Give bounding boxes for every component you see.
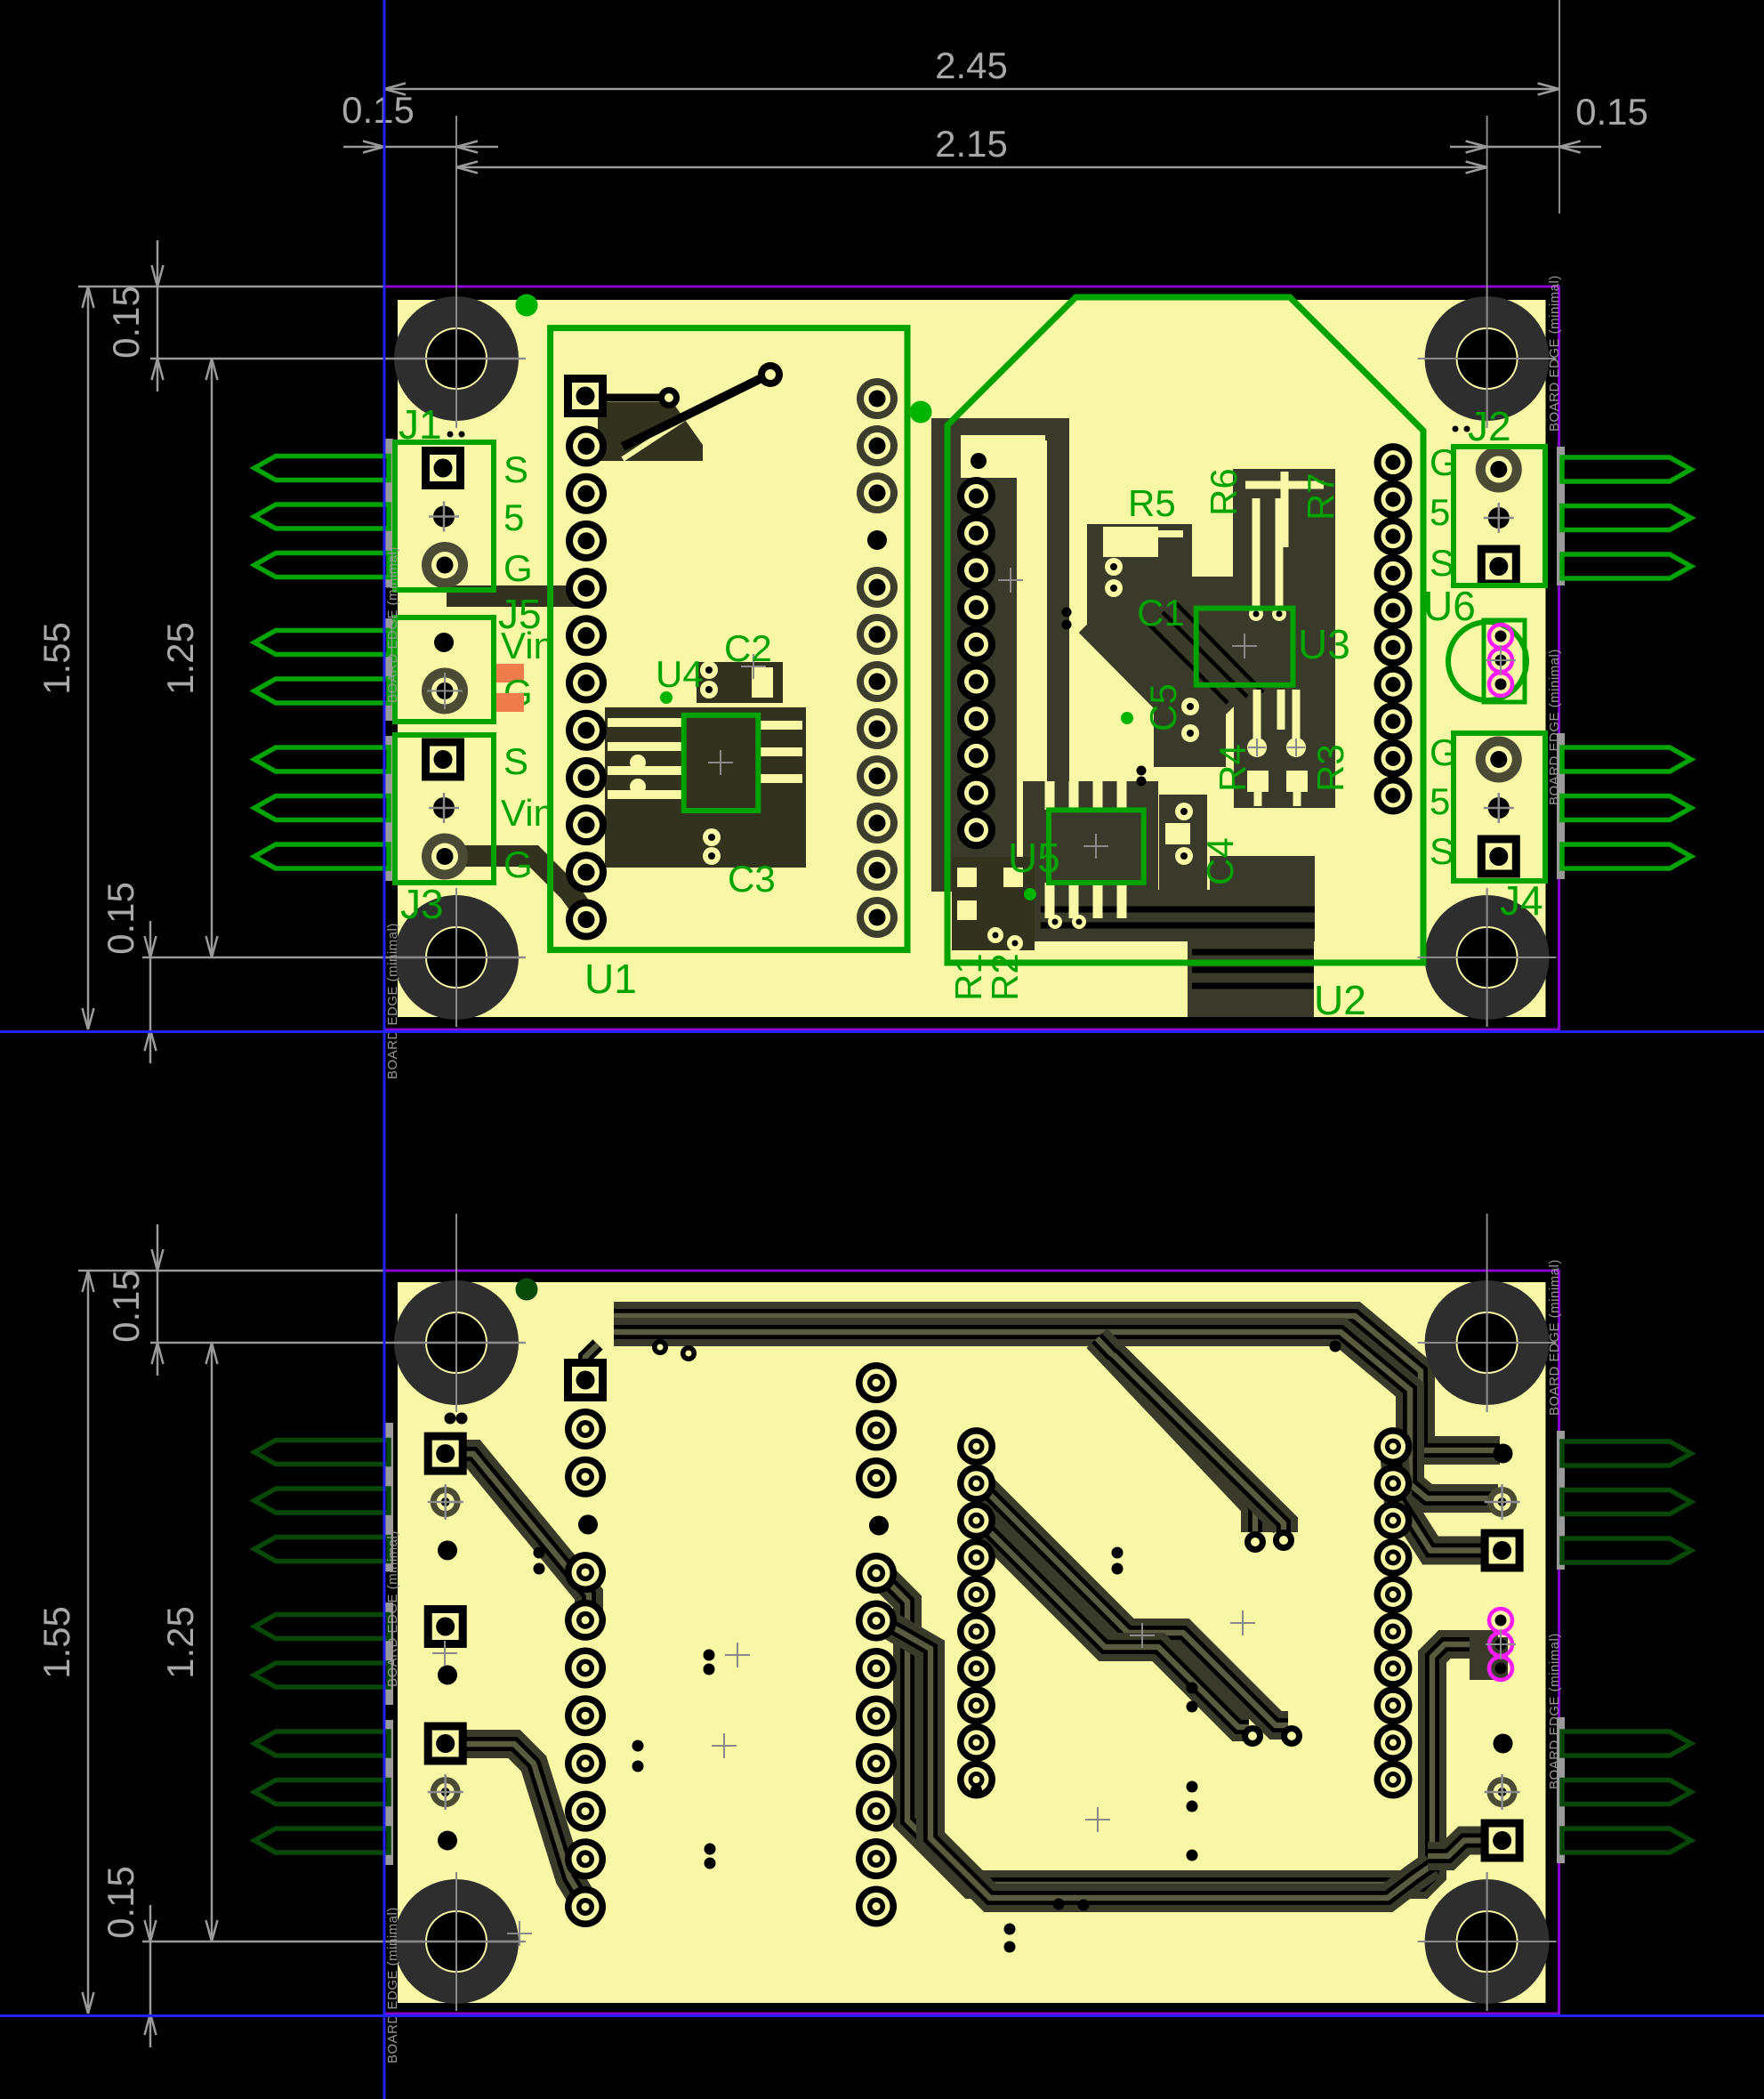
svg-text:J4: J4: [1500, 877, 1543, 924]
svg-text:2.45: 2.45: [935, 44, 1008, 86]
svg-text:0.15: 0.15: [100, 882, 141, 955]
svg-text:C5: C5: [1142, 683, 1184, 731]
svg-text:0.15: 0.15: [100, 1866, 141, 1939]
svg-text:R6: R6: [1203, 468, 1244, 516]
svg-text:G: G: [503, 844, 533, 885]
svg-text:G: G: [1430, 441, 1459, 483]
svg-text:C3: C3: [728, 858, 776, 900]
svg-text:G: G: [1430, 731, 1459, 773]
svg-text:R4: R4: [1212, 744, 1253, 792]
svg-text:BOARD EDGE (minimal): BOARD EDGE (minimal): [1547, 1259, 1562, 1416]
svg-text:J2: J2: [1468, 403, 1511, 449]
svg-text:R2: R2: [984, 953, 1026, 1001]
svg-text:Vin: Vin: [501, 625, 554, 666]
svg-text:BOARD EDGE (minimal): BOARD EDGE (minimal): [385, 546, 400, 703]
svg-text:S: S: [1430, 542, 1454, 584]
svg-text:R1: R1: [947, 953, 989, 1001]
svg-text:1.25: 1.25: [159, 1606, 201, 1679]
svg-text:J3: J3: [400, 881, 444, 927]
svg-text:S: S: [1430, 830, 1454, 872]
svg-text:U3: U3: [1298, 621, 1350, 667]
svg-text:1.25: 1.25: [159, 622, 201, 695]
svg-text:BOARD EDGE (minimal): BOARD EDGE (minimal): [385, 1907, 400, 2063]
svg-text:R7: R7: [1300, 472, 1341, 521]
svg-text:5: 5: [1430, 491, 1450, 533]
svg-text:BOARD EDGE (minimal): BOARD EDGE (minimal): [1547, 275, 1562, 432]
svg-text:J1: J1: [399, 401, 442, 448]
svg-text:1.55: 1.55: [36, 1606, 77, 1679]
svg-text:0.15: 0.15: [105, 286, 147, 359]
svg-text:C4: C4: [1199, 837, 1241, 885]
svg-text:1.55: 1.55: [36, 622, 77, 695]
svg-text:0.15: 0.15: [342, 89, 415, 131]
svg-text:U5: U5: [1008, 835, 1060, 881]
svg-text:5: 5: [503, 496, 524, 538]
svg-text:BOARD EDGE (minimal): BOARD EDGE (minimal): [385, 923, 400, 1079]
svg-text:C2: C2: [724, 627, 772, 669]
svg-text:0.15: 0.15: [105, 1270, 147, 1343]
svg-text:U2: U2: [1314, 977, 1366, 1023]
svg-text:U4: U4: [656, 653, 704, 695]
svg-text:BOARD EDGE (minimal): BOARD EDGE (minimal): [1547, 649, 1562, 805]
svg-text:0.15: 0.15: [1575, 91, 1648, 133]
svg-text:S: S: [503, 740, 528, 782]
svg-text:BOARD EDGE (minimal): BOARD EDGE (minimal): [385, 1530, 400, 1687]
svg-text:2.15: 2.15: [935, 123, 1008, 165]
svg-text:G: G: [503, 547, 533, 589]
svg-text:BOARD EDGE (minimal): BOARD EDGE (minimal): [1547, 1633, 1562, 1789]
svg-text:Vin: Vin: [501, 792, 554, 834]
svg-text:U6: U6: [1423, 583, 1476, 629]
svg-text:5: 5: [1430, 780, 1450, 822]
svg-text:R5: R5: [1128, 482, 1176, 524]
svg-text:R3: R3: [1309, 744, 1351, 792]
svg-text:U1: U1: [584, 956, 637, 1002]
svg-text:C1: C1: [1137, 592, 1185, 634]
svg-text:S: S: [503, 448, 528, 490]
